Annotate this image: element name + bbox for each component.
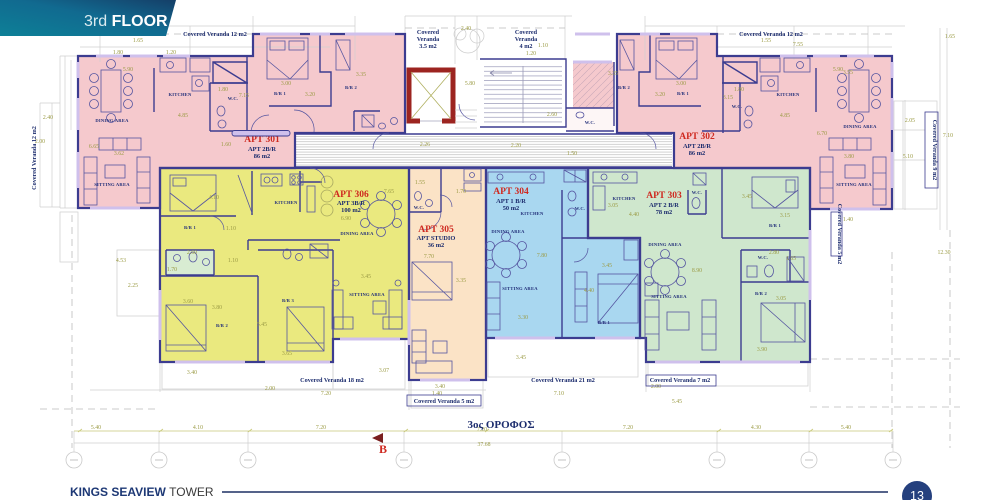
- svg-text:1.60: 1.60: [221, 142, 231, 148]
- svg-text:2.26: 2.26: [420, 142, 430, 148]
- svg-text:2.00: 2.00: [35, 139, 45, 145]
- svg-text:7.20: 7.20: [623, 425, 633, 431]
- svg-text:7.20: 7.20: [321, 391, 331, 397]
- svg-text:B/R 1: B/R 1: [598, 320, 611, 325]
- svg-text:3.05: 3.05: [608, 203, 618, 209]
- svg-text:3.05: 3.05: [776, 296, 786, 302]
- svg-text:36 m2: 36 m2: [428, 242, 445, 249]
- svg-text:KITCHEN: KITCHEN: [168, 92, 192, 97]
- svg-text:3.00: 3.00: [281, 81, 291, 87]
- svg-text:3.45: 3.45: [742, 194, 752, 200]
- svg-text:5.40: 5.40: [91, 425, 101, 431]
- svg-text:4.10: 4.10: [209, 195, 219, 201]
- svg-text:W.C.: W.C.: [228, 96, 239, 101]
- svg-text:Covered Veranda 12 m2: Covered Veranda 12 m2: [183, 31, 247, 38]
- svg-text:5.80: 5.80: [465, 81, 475, 87]
- svg-text:4.40: 4.40: [629, 212, 639, 218]
- svg-text:4.10: 4.10: [193, 425, 203, 431]
- svg-text:3.35: 3.35: [356, 72, 366, 78]
- svg-text:W.C.: W.C.: [575, 206, 586, 211]
- svg-text:W.C.: W.C.: [414, 205, 425, 210]
- svg-text:5.45: 5.45: [672, 399, 682, 405]
- svg-text:B: B: [379, 442, 387, 456]
- svg-text:APT 302: APT 302: [679, 132, 715, 142]
- svg-text:SITTING AREA: SITTING AREA: [502, 286, 538, 291]
- svg-text:3.45: 3.45: [516, 355, 526, 361]
- svg-text:2.60: 2.60: [547, 112, 557, 118]
- svg-text:6.90: 6.90: [341, 216, 351, 222]
- svg-text:1.65: 1.65: [945, 34, 955, 40]
- svg-text:1.50: 1.50: [567, 151, 577, 157]
- svg-text:B/R 1: B/R 1: [184, 225, 197, 230]
- svg-text:3.62: 3.62: [114, 151, 124, 157]
- svg-text:3.45: 3.45: [602, 263, 612, 269]
- svg-text:Covered Veranda 21 m2: Covered Veranda 21 m2: [531, 377, 595, 384]
- svg-text:KITCHEN: KITCHEN: [520, 211, 544, 216]
- svg-text:APT 306: APT 306: [333, 190, 369, 200]
- svg-text:SITTING AREA: SITTING AREA: [836, 182, 872, 187]
- svg-text:1.10: 1.10: [538, 43, 548, 49]
- svg-text:SITTING AREA: SITTING AREA: [651, 294, 687, 299]
- svg-text:3.55: 3.55: [843, 70, 853, 76]
- svg-text:3.35: 3.35: [608, 71, 618, 77]
- svg-text:7.65: 7.65: [384, 189, 394, 195]
- svg-text:2.25: 2.25: [128, 283, 138, 289]
- svg-text:2.00: 2.00: [651, 384, 661, 390]
- svg-text:3.40: 3.40: [187, 370, 197, 376]
- svg-text:3.5 m2: 3.5 m2: [419, 43, 437, 50]
- svg-text:1.65: 1.65: [786, 256, 796, 262]
- svg-text:KINGS SEAVIEW TOWER: KINGS SEAVIEW TOWER: [70, 485, 214, 499]
- svg-text:6.65: 6.65: [89, 144, 99, 150]
- svg-text:Veranda: Veranda: [417, 36, 439, 43]
- svg-text:1.80: 1.80: [218, 87, 228, 93]
- svg-text:1.55: 1.55: [761, 38, 771, 44]
- svg-text:86 m2: 86 m2: [689, 150, 706, 157]
- svg-text:2.40: 2.40: [461, 26, 471, 32]
- svg-text:2.05: 2.05: [905, 118, 915, 124]
- svg-text:1.70: 1.70: [456, 189, 466, 195]
- svg-text:DINING AREA: DINING AREA: [491, 229, 525, 234]
- svg-text:APT 303: APT 303: [646, 191, 682, 201]
- svg-text:3.15: 3.15: [723, 95, 733, 101]
- svg-text:APT 2 B/R: APT 2 B/R: [649, 202, 679, 209]
- svg-text:7.15: 7.15: [239, 93, 249, 99]
- svg-text:50 m2: 50 m2: [503, 205, 520, 212]
- svg-text:4.53: 4.53: [116, 258, 126, 264]
- svg-text:3.20: 3.20: [655, 92, 665, 98]
- svg-text:B/R 1: B/R 1: [769, 223, 782, 228]
- svg-text:3.80: 3.80: [844, 154, 854, 160]
- svg-text:4 m2: 4 m2: [520, 43, 533, 50]
- svg-text:SITTING AREA: SITTING AREA: [349, 292, 385, 297]
- svg-text:APT 3B/R: APT 3B/R: [337, 200, 365, 207]
- svg-text:1.10: 1.10: [228, 258, 238, 264]
- svg-text:B/R 2: B/R 2: [216, 323, 229, 328]
- svg-text:3.45: 3.45: [361, 274, 371, 280]
- svg-text:5.10: 5.10: [903, 154, 913, 160]
- svg-text:W.C.: W.C.: [585, 120, 596, 125]
- svg-text:Covered Veranda 7 m2: Covered Veranda 7 m2: [650, 377, 711, 384]
- svg-text:Covered: Covered: [417, 29, 440, 36]
- svg-text:B/R 3: B/R 3: [282, 298, 295, 303]
- svg-text:4.40: 4.40: [584, 288, 594, 294]
- svg-text:APT 301: APT 301: [244, 135, 280, 145]
- svg-text:DINING AREA: DINING AREA: [340, 231, 374, 236]
- svg-text:3.15: 3.15: [780, 213, 790, 219]
- svg-text:13: 13: [910, 489, 924, 500]
- svg-text:B/R 2: B/R 2: [755, 291, 768, 296]
- svg-text:B/R 2: B/R 2: [618, 85, 631, 90]
- svg-text:6.70: 6.70: [817, 131, 827, 137]
- svg-text:1.10: 1.10: [226, 226, 236, 232]
- svg-text:B/R 1: B/R 1: [274, 91, 287, 96]
- svg-text:7.10: 7.10: [943, 133, 953, 139]
- svg-text:7.10: 7.10: [554, 391, 564, 397]
- svg-text:3ος ΟΡΟΦΟΣ: 3ος ΟΡΟΦΟΣ: [467, 419, 534, 431]
- svg-text:5.45: 5.45: [257, 322, 267, 328]
- svg-text:Covered: Covered: [515, 29, 538, 36]
- svg-text:1.20: 1.20: [526, 51, 536, 57]
- svg-text:B/R 1: B/R 1: [677, 91, 690, 96]
- svg-text:APT 2B/R: APT 2B/R: [248, 146, 276, 153]
- svg-text:1.40: 1.40: [432, 391, 442, 397]
- svg-text:SITTING AREA: SITTING AREA: [94, 182, 130, 187]
- svg-text:3.90: 3.90: [757, 347, 767, 353]
- svg-text:3.00: 3.00: [676, 81, 686, 87]
- svg-text:KITCHEN: KITCHEN: [274, 200, 298, 205]
- svg-text:3.65: 3.65: [282, 351, 292, 357]
- svg-text:7.80: 7.80: [537, 253, 547, 259]
- svg-text:5.90: 5.90: [833, 67, 843, 73]
- svg-text:3.30: 3.30: [518, 315, 528, 321]
- svg-text:Covered Veranda 18 m2: Covered Veranda 18 m2: [300, 377, 364, 384]
- svg-text:DINING AREA: DINING AREA: [95, 118, 129, 123]
- svg-text:3.35: 3.35: [456, 278, 466, 284]
- svg-text:86 m2: 86 m2: [254, 153, 271, 160]
- svg-text:2.00: 2.00: [265, 386, 275, 392]
- svg-text:1.80: 1.80: [113, 50, 123, 56]
- svg-text:W.C.: W.C.: [758, 255, 769, 260]
- svg-text:4.30: 4.30: [751, 425, 761, 431]
- svg-text:7.70: 7.70: [424, 254, 434, 260]
- svg-text:Covered Veranda 5 m2: Covered Veranda 5 m2: [414, 398, 475, 405]
- svg-text:1.55: 1.55: [415, 180, 425, 186]
- svg-text:Covered Veranda 12 m2: Covered Veranda 12 m2: [31, 126, 38, 190]
- svg-text:APT 2B/R: APT 2B/R: [683, 143, 711, 150]
- svg-text:3.60: 3.60: [183, 299, 193, 305]
- svg-text:12.30: 12.30: [937, 250, 950, 256]
- svg-text:Veranda: Veranda: [515, 36, 537, 43]
- svg-text:3rd FLOOR: 3rd FLOOR: [84, 13, 168, 30]
- svg-text:2.40: 2.40: [43, 115, 53, 121]
- svg-text:1.40: 1.40: [843, 217, 853, 223]
- svg-text:2.60: 2.60: [187, 250, 197, 256]
- svg-text:APT 304: APT 304: [493, 187, 529, 197]
- svg-text:KITCHEN: KITCHEN: [776, 92, 800, 97]
- svg-text:APT STUDIO: APT STUDIO: [417, 235, 456, 242]
- svg-text:2.80: 2.80: [769, 250, 779, 256]
- svg-text:37.68: 37.68: [477, 442, 490, 448]
- svg-text:4.85: 4.85: [178, 113, 188, 119]
- svg-text:3.20: 3.20: [305, 92, 315, 98]
- svg-text:8.90: 8.90: [692, 268, 702, 274]
- svg-text:3.07: 3.07: [379, 368, 389, 374]
- svg-text:3.80: 3.80: [212, 305, 222, 311]
- svg-text:5.40: 5.40: [841, 425, 851, 431]
- svg-text:B/R 2: B/R 2: [345, 85, 358, 90]
- svg-text:7.55: 7.55: [793, 42, 803, 48]
- svg-text:100 m2: 100 m2: [341, 207, 361, 214]
- svg-text:DINING AREA: DINING AREA: [648, 242, 682, 247]
- svg-text:APT 305: APT 305: [418, 225, 454, 235]
- svg-text:78 m2: 78 m2: [656, 209, 673, 216]
- svg-text:3.40: 3.40: [435, 384, 445, 390]
- svg-text:1.80: 1.80: [734, 87, 744, 93]
- svg-text:W.C.: W.C.: [732, 104, 743, 109]
- svg-text:1.70: 1.70: [167, 267, 177, 273]
- svg-text:7.20: 7.20: [316, 425, 326, 431]
- svg-text:APT 1 B/R: APT 1 B/R: [496, 198, 526, 205]
- svg-text:Covered Veranda 12 m2: Covered Veranda 12 m2: [739, 31, 803, 38]
- svg-text:1.65: 1.65: [133, 38, 143, 44]
- svg-text:2.20: 2.20: [511, 143, 521, 149]
- svg-text:DINING AREA: DINING AREA: [843, 124, 877, 129]
- svg-text:KITCHEN: KITCHEN: [612, 196, 636, 201]
- svg-text:4.85: 4.85: [780, 113, 790, 119]
- svg-text:1.20: 1.20: [166, 50, 176, 56]
- svg-text:Covered Veranda 9 m2: Covered Veranda 9 m2: [931, 120, 938, 181]
- svg-text:W.C.: W.C.: [692, 190, 703, 195]
- svg-text:5.90: 5.90: [123, 67, 133, 73]
